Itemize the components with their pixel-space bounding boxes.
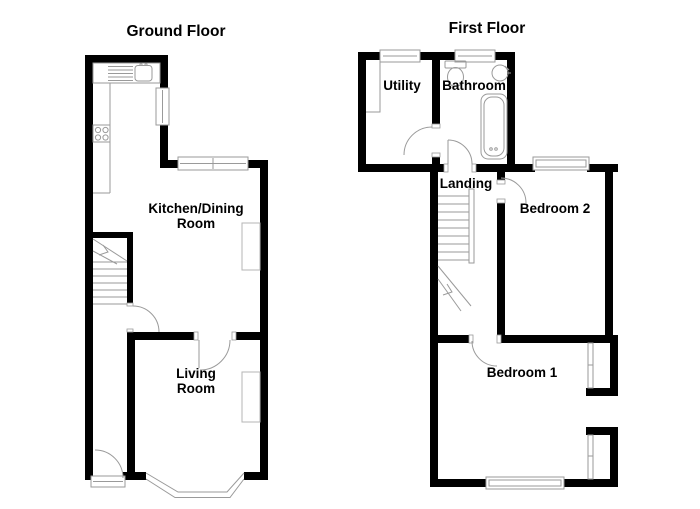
wall-segment [501, 335, 618, 343]
hob-burner [103, 127, 108, 132]
wall-segment [605, 172, 613, 343]
door-jamb [127, 329, 133, 332]
bedroom2-label: Bedroom 2 [520, 201, 591, 216]
living-room-label: Living [176, 366, 216, 381]
staircase-first [438, 189, 474, 311]
bathtub-inner [484, 97, 504, 156]
door-jamb [472, 164, 476, 172]
wall-segment [160, 160, 178, 168]
wall-segment [123, 472, 148, 480]
wall-segment [562, 479, 618, 487]
bedroom1-front-window [486, 477, 564, 489]
kitchen-side-window [156, 88, 169, 125]
bathroom-label: Bathroom [442, 78, 506, 93]
door-jamb [444, 164, 448, 172]
door-arc [95, 450, 123, 478]
wall-segment [127, 332, 135, 480]
wall-segment [587, 164, 618, 172]
ground-floor-title: Ground Floor [126, 23, 225, 40]
wall-segment [260, 160, 268, 480]
living-room-label-line2: Room [177, 381, 215, 396]
utility-window [380, 50, 420, 62]
wall-segment [85, 55, 93, 480]
stair-rail [469, 189, 474, 263]
wall-segment [497, 172, 505, 180]
wall-segment [430, 172, 438, 487]
stair-arrow [99, 245, 108, 255]
hob-burner [103, 135, 108, 140]
door-arc-stairs [133, 306, 159, 332]
wall-segment [476, 164, 535, 172]
front-door [91, 450, 125, 487]
landing-label: Landing [440, 176, 493, 191]
first-floor-plan: First Floor [358, 20, 618, 489]
hob-icon [93, 125, 110, 142]
wall-segment [586, 388, 618, 396]
bedroom1-side-window-upper [588, 343, 593, 388]
door-jamb [127, 303, 133, 306]
wall-segment [493, 52, 515, 60]
wall-segment [507, 60, 515, 164]
door-jamb [232, 332, 236, 340]
wall-segment [160, 60, 168, 88]
bay-window [146, 472, 244, 498]
bedroom1-label: Bedroom 1 [487, 365, 558, 380]
bedroom1-side-window-lower [588, 435, 593, 479]
window-frame [486, 477, 564, 489]
hob-burner [95, 135, 100, 140]
utility-label: Utility [383, 78, 421, 93]
door-jamb [497, 335, 501, 343]
door-jamb [432, 153, 440, 157]
wall-segment [93, 232, 133, 238]
bathtub-icon [481, 94, 507, 159]
wall-segment [358, 52, 366, 172]
door-arc [448, 140, 472, 164]
bathtub-tap [490, 148, 493, 151]
window-frame [588, 435, 593, 479]
staircase-ground [93, 239, 127, 304]
bathtub-tap [495, 148, 498, 151]
door-jamb [497, 199, 505, 203]
door-jamb [194, 332, 198, 340]
door-arc-bedroom1 [472, 341, 497, 366]
first-floor-title: First Floor [449, 20, 526, 37]
window-frame [533, 157, 589, 170]
bedroom2-window [533, 157, 589, 170]
stair-break-line [93, 239, 127, 261]
wall-segment [497, 203, 505, 343]
wall-segment [610, 343, 618, 388]
wall-segment [127, 238, 133, 305]
door-bathroom [448, 140, 472, 164]
stair-arrow [443, 284, 452, 295]
wall-segment [586, 427, 618, 435]
kitchen-sink-icon [93, 63, 160, 83]
chimney-breast [242, 372, 260, 422]
hob-burner [95, 127, 100, 132]
bay-window-body [146, 472, 244, 497]
wall-segment [85, 55, 168, 63]
wall-segment [127, 332, 194, 340]
wall-segment [236, 332, 260, 340]
chimney-breast [242, 223, 260, 270]
kitchen-dining-label-line2: Room [177, 216, 215, 231]
bathroom-window [455, 50, 495, 62]
wall-segment [432, 60, 440, 124]
bathtub-outer [481, 94, 507, 159]
floorplan-canvas: Ground Floor [0, 0, 700, 509]
first-floor-walls [358, 52, 618, 487]
utility-counter-line [366, 60, 380, 112]
door-jamb [497, 180, 505, 184]
wall-segment [358, 164, 444, 172]
floorplan-page: Ground Floor [0, 0, 700, 509]
wall-segment [418, 52, 457, 60]
ground-floor-plan: Ground Floor [85, 23, 268, 498]
ground-floor-walls [85, 55, 268, 480]
kitchen-dining-label: Kitchen/Dining [148, 201, 243, 216]
door-arc-utility [404, 127, 432, 155]
wall-segment [430, 479, 488, 487]
stair-break-line [438, 279, 461, 311]
wall-segment [432, 157, 440, 172]
dining-rear-window [178, 157, 248, 170]
wall-segment [438, 335, 469, 343]
wall-segment [243, 472, 268, 480]
door-jamb [432, 124, 440, 128]
